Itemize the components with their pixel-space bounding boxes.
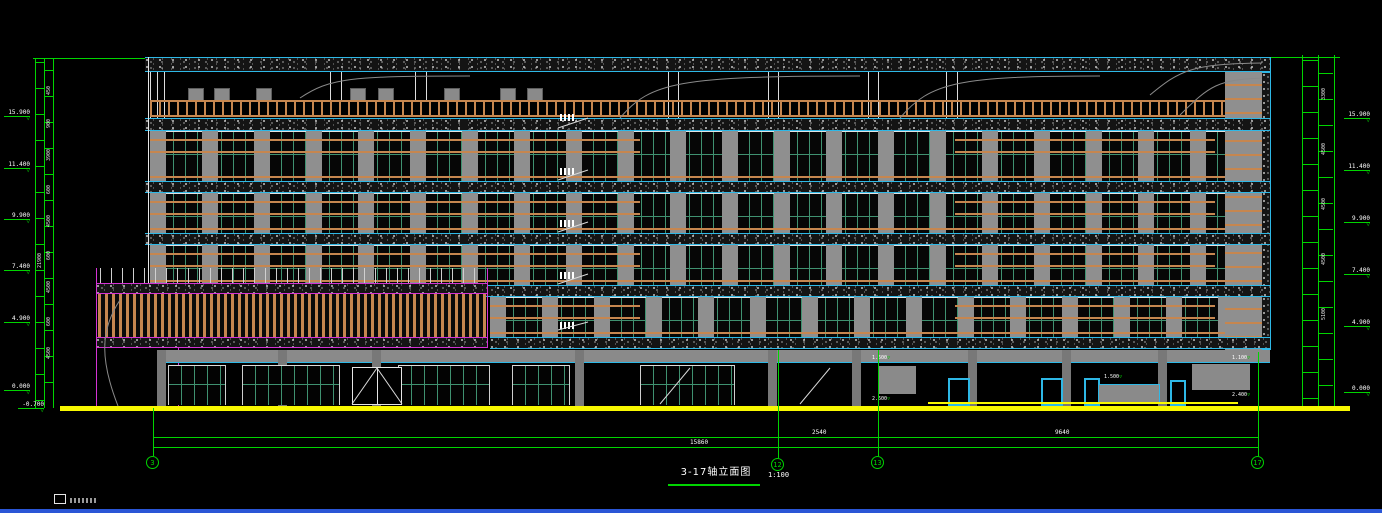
- louver-line: [150, 151, 640, 153]
- ground-equipment-box: [878, 366, 916, 394]
- level-triangle-icon: ▽: [4, 220, 30, 224]
- right-dim-text: 4500: [1322, 143, 1327, 155]
- left-dim-text: 4500: [47, 281, 52, 293]
- louver-line: [150, 213, 640, 215]
- storefront-glazing: [512, 365, 570, 405]
- level-marker: 4.900▽: [4, 316, 30, 327]
- storefront-glazing: [640, 365, 735, 405]
- level-marker: 0.000▽: [4, 384, 30, 395]
- level-marker: 11.400▽: [1344, 164, 1370, 175]
- level-triangle-icon: ▽: [1119, 374, 1122, 380]
- left-dim-ticks: [36, 62, 44, 406]
- grid-bubble-3: 3: [146, 456, 159, 469]
- bottom-dim-line-upper: [153, 437, 1258, 438]
- grid-bubble-17: 17: [1251, 456, 1264, 469]
- annex-right-edge: [487, 268, 488, 348]
- level-marker: -0.700▽: [18, 402, 44, 413]
- drawing-title: 3-17轴立面图: [668, 467, 764, 479]
- right-dim-text: 3300: [1322, 88, 1327, 100]
- facade-callout-mark: [560, 272, 576, 279]
- drawing-scale: 1:100: [768, 471, 789, 479]
- level-triangle-icon: ▽: [4, 169, 30, 173]
- parapet-hatch-band: [145, 57, 1270, 72]
- level-marker: 9.900▽: [1344, 216, 1370, 227]
- ground-mark-text: 1.600: [872, 355, 887, 361]
- annex-louver-screen: [98, 294, 486, 337]
- louver-line: [150, 201, 640, 203]
- right-dim-ticks: [1303, 60, 1318, 406]
- louver-line: [150, 176, 1225, 178]
- louver-line: [150, 228, 1225, 230]
- grid-line-17: [1258, 352, 1259, 456]
- left-dim-text: 600: [47, 251, 52, 260]
- roof-post: [426, 72, 427, 102]
- ground-column: [1062, 350, 1071, 406]
- louver-line: [955, 201, 1215, 203]
- louver-line: [490, 332, 1225, 334]
- title-underline: [668, 484, 760, 486]
- louver-line: [955, 139, 1215, 141]
- louver-line: [955, 265, 1215, 267]
- ground-level-mark: 2.400▽: [1232, 393, 1250, 398]
- facade-callout-mark: [560, 220, 576, 227]
- louver-line: [490, 305, 640, 307]
- right-dim-text: 4500: [1322, 253, 1327, 265]
- roof-post: [415, 72, 416, 102]
- louver-line: [955, 151, 1215, 153]
- left-dim-text: 600: [47, 185, 52, 194]
- ground-line: [60, 406, 1350, 411]
- right-extension-line: [1270, 57, 1340, 58]
- louver-line: [150, 253, 640, 255]
- right-dim-text: 4500: [1322, 198, 1327, 210]
- ground-mark-text: 2.600: [872, 396, 887, 402]
- left-dim-text: 4500: [47, 347, 52, 359]
- louver-line: [955, 317, 1215, 319]
- building-right-edge: [1270, 57, 1271, 350]
- facade-callout-mark: [560, 322, 576, 329]
- ground-fascia-band: [157, 350, 1270, 363]
- annex-hatch-band: [96, 283, 488, 294]
- grid-bubble-13: 13: [871, 456, 884, 469]
- bottom-dim-text: 15860: [690, 440, 708, 446]
- ground-column: [768, 350, 777, 406]
- level-triangle-icon: ▽: [4, 271, 30, 275]
- left-dim-text: 600: [47, 317, 52, 326]
- door-center-mullion: [377, 367, 378, 405]
- level-marker: 4.900▽: [1344, 320, 1370, 331]
- spandrel-hatch-band: [145, 118, 1270, 131]
- right-dim-ticks: [1319, 73, 1333, 406]
- level-triangle-icon: ▽: [1344, 119, 1370, 123]
- ground-mark-text: 2.400: [1232, 392, 1247, 398]
- louver-line: [150, 139, 640, 141]
- spandrel-hatch-band: [145, 233, 1270, 245]
- annex-railing-posts: [100, 268, 485, 283]
- left-dim-line-inner: [53, 58, 54, 408]
- level-triangle-icon: ▽: [887, 396, 890, 402]
- bottom-dim-line-lower: [153, 447, 1258, 448]
- level-triangle-icon: ▽: [4, 323, 30, 327]
- left-dim-text: 3900: [47, 149, 52, 161]
- bottom-dim-text: 9640: [1055, 430, 1069, 436]
- storefront-glazing: [242, 365, 340, 405]
- grid-line-13: [878, 350, 879, 456]
- ground-mark-text: 1.100: [1232, 355, 1247, 361]
- right-tower-wall: [1225, 72, 1262, 350]
- storefront-glazing: [398, 365, 490, 405]
- level-marker: 9.900▽: [4, 213, 30, 224]
- level-marker: 15.900▽: [1344, 112, 1370, 123]
- spandrel-hatch-band: [145, 181, 1270, 193]
- level-triangle-icon: ▽: [4, 117, 30, 121]
- ground-level-mark: 1.500▽: [1104, 375, 1122, 380]
- level-triangle-icon: ▽: [1344, 275, 1370, 279]
- ground-mark-text: 1.500: [1104, 374, 1119, 380]
- left-dim-text: 900: [47, 119, 52, 128]
- storefront-glazing: [168, 365, 226, 405]
- louver-line: [150, 265, 640, 267]
- left-dim-text: 4500: [47, 215, 52, 227]
- bottom-dim-text: 2540: [812, 430, 826, 436]
- grid-bubble-12: 12: [771, 458, 784, 471]
- level-triangle-icon: ▽: [18, 409, 44, 413]
- facade-callout-mark: [560, 168, 576, 175]
- right-dim-text: 5100: [1322, 308, 1327, 320]
- facade-callout-mark: [560, 114, 576, 121]
- ground-level-mark: 1.600▽: [872, 356, 890, 361]
- level-triangle-icon: ▽: [1247, 392, 1250, 398]
- right-dim-line-outer: [1334, 55, 1335, 408]
- level-marker: 15.900▽: [4, 110, 30, 121]
- door-sill-line: [928, 402, 1238, 404]
- cad-elevation-drawing: 450 900 3900 600 4500 600 4500 600 4500 …: [0, 0, 1382, 513]
- level-triangle-icon: ▽: [1344, 327, 1370, 331]
- level-triangle-icon: ▽: [4, 391, 30, 395]
- left-dim-total-text: 21900: [38, 253, 43, 268]
- ground-column: [157, 350, 166, 406]
- level-triangle-icon: ▽: [1344, 223, 1370, 227]
- level-marker: 7.400▽: [1344, 268, 1370, 279]
- roof-guardrail: [150, 100, 1225, 117]
- level-marker: 11.400▽: [4, 162, 30, 173]
- legend-box: [54, 494, 66, 504]
- annex-hatch-band: [96, 337, 488, 348]
- level-triangle-icon: ▽: [1344, 171, 1370, 175]
- ground-column: [575, 350, 584, 406]
- grid-line-3: [153, 408, 154, 456]
- louver-line: [955, 213, 1215, 215]
- ground-level-mark: 1.100▽: [1232, 356, 1250, 361]
- annex-left-edge: [96, 268, 97, 406]
- ground-column: [852, 350, 861, 406]
- ground-equipment-box: [1192, 364, 1250, 390]
- ground-level-mark: 2.600▽: [872, 397, 890, 402]
- grid-line-12: [778, 350, 779, 458]
- footer-blue-bar: [0, 509, 1382, 513]
- roof-post: [330, 72, 331, 102]
- level-marker: 7.400▽: [4, 264, 30, 275]
- level-triangle-icon: ▽: [1344, 393, 1370, 397]
- legend-label-mark: [70, 498, 98, 503]
- roof-post: [341, 72, 342, 102]
- louver-line: [490, 317, 640, 319]
- left-dim-text: 450: [47, 86, 52, 95]
- right-edge-hatch: [1262, 72, 1270, 350]
- louver-line: [955, 253, 1215, 255]
- level-triangle-icon: ▽: [887, 355, 890, 361]
- ground-canopy-box: [1098, 384, 1160, 404]
- spandrel-hatch-band: [490, 337, 1270, 349]
- louver-line: [955, 305, 1215, 307]
- level-triangle-icon: ▽: [1247, 355, 1250, 361]
- level-marker: 0.000▽: [1344, 386, 1370, 397]
- left-extension-line: [33, 58, 150, 59]
